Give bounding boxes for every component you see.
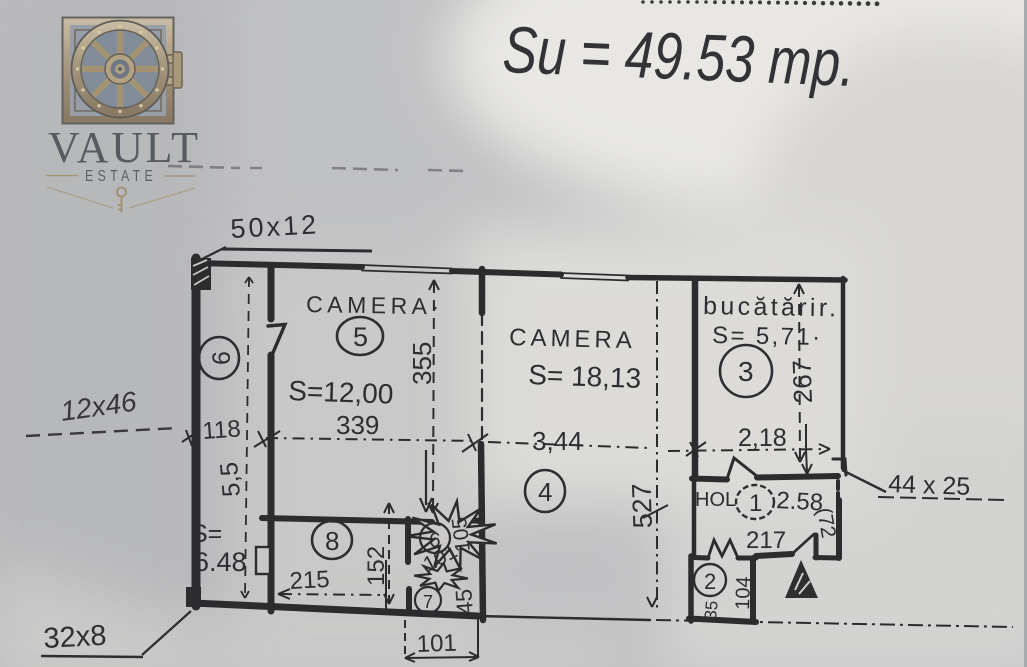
svg-text:S=: S= [191, 520, 222, 548]
svg-text:35: 35 [701, 600, 722, 621]
svg-text:152: 152 [363, 546, 390, 586]
svg-text:217: 217 [746, 527, 786, 554]
svg-text:1: 1 [749, 490, 762, 517]
svg-text:ESTATE: ESTATE [85, 168, 157, 185]
svg-text:3,44: 3,44 [532, 426, 583, 456]
svg-text:5: 5 [353, 322, 368, 352]
svg-text:6.48: 6.48 [194, 547, 247, 577]
svg-text:45: 45 [450, 588, 478, 615]
svg-text:2,18: 2,18 [738, 424, 787, 452]
svg-text:CAMERA·: CAMERA· [306, 291, 444, 319]
svg-text:355: 355 [407, 342, 437, 385]
svg-text:527: 527 [626, 483, 658, 529]
svg-text:S=12,00: S=12,00 [288, 375, 394, 410]
svg-text:339: 339 [336, 410, 379, 440]
svg-text:50x12: 50x12 [230, 209, 320, 244]
svg-text:101: 101 [416, 630, 457, 658]
svg-text:2: 2 [704, 569, 716, 594]
svg-text:104: 104 [732, 576, 755, 610]
svg-text:S= 18,13: S= 18,13 [528, 359, 642, 394]
svg-text:5,5: 5,5 [215, 461, 246, 498]
svg-text:HOL: HOL [695, 489, 736, 511]
svg-text:7: 7 [423, 592, 433, 612]
svg-text:44 x 25: 44 x 25 [888, 470, 971, 501]
svg-text:6: 6 [208, 351, 236, 365]
svg-text:3: 3 [738, 356, 754, 387]
svg-text:VAULT: VAULT [48, 123, 198, 172]
svg-text:267: 267 [787, 359, 818, 403]
svg-text:8: 8 [325, 526, 339, 556]
svg-text:CAMERA: CAMERA [509, 324, 636, 354]
svg-text:Su = 49.53 mp.: Su = 49.53 mp. [501, 12, 856, 100]
svg-text:32x8: 32x8 [43, 620, 107, 655]
svg-text:118: 118 [202, 415, 242, 445]
svg-text:215: 215 [289, 566, 330, 595]
svg-text:4: 4 [538, 477, 552, 507]
